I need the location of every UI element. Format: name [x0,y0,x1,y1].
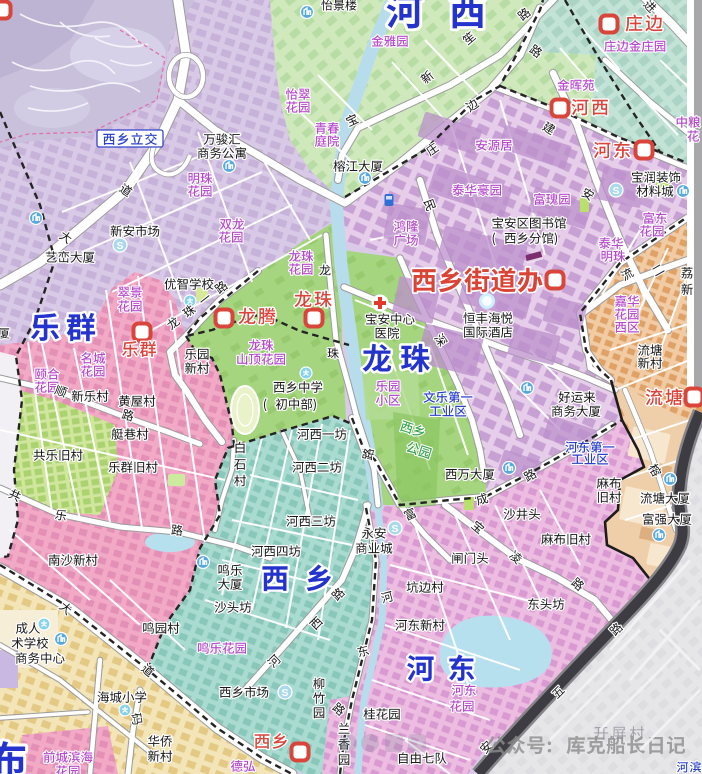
svg-text:S: S [391,523,398,535]
svg-text:S: S [116,240,123,252]
svg-text:S: S [281,687,288,699]
svg-text:S: S [612,185,619,197]
